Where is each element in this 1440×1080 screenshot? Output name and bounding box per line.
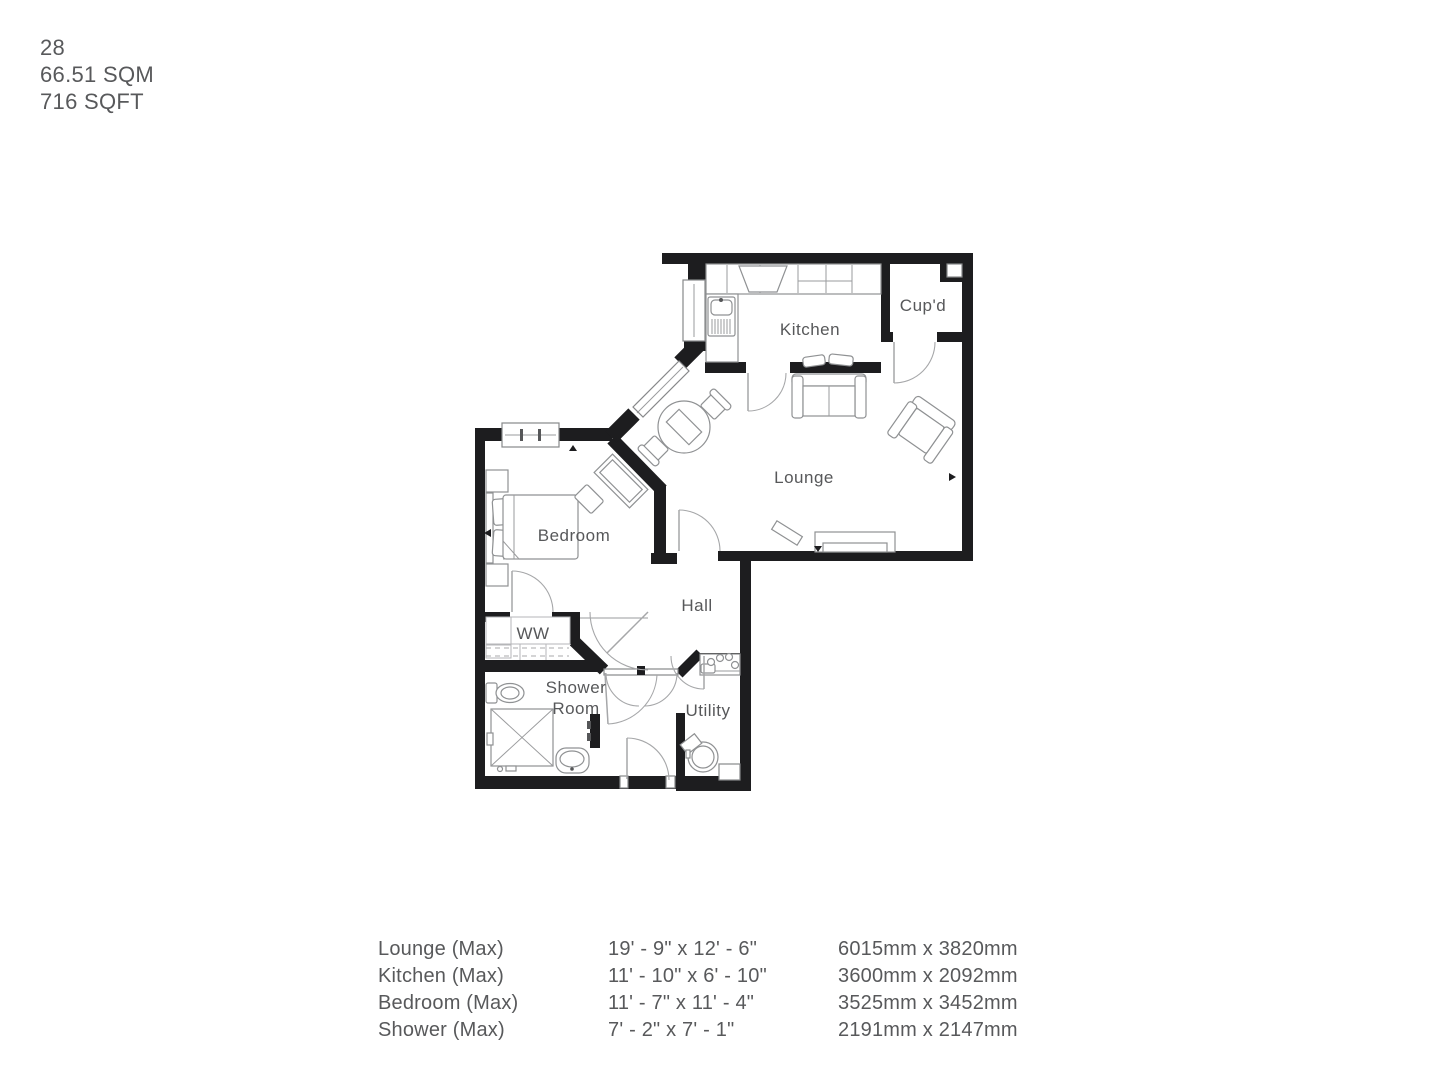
dimensions-table: Lounge (Max) 19' - 9" x 12' - 6" 6015mm … <box>378 938 1088 1046</box>
wardrobe-door <box>512 571 553 612</box>
entry-jamb-right <box>666 776 675 788</box>
room-label-bedroom: Bedroom <box>538 526 610 545</box>
lobby-doors <box>606 673 677 706</box>
floor-plan: Kitchen Cup'd Lounge Bedroom Hall WW Sho… <box>0 0 1440 1080</box>
kitchen-door <box>748 373 786 411</box>
room-label-cupboard: Cup'd <box>900 296 946 315</box>
room-label-shower: Shower <box>546 678 607 697</box>
toilet <box>486 683 524 703</box>
cupboard-door <box>894 342 935 383</box>
utility-notch <box>719 764 740 780</box>
lounge-furniture <box>637 354 959 552</box>
kitchen-units <box>706 264 881 362</box>
bedroom-furniture <box>486 454 648 586</box>
dim-imperial: 19' - 9" x 12' - 6" <box>608 938 838 965</box>
stool <box>574 484 604 514</box>
dim-metric: 3525mm x 3452mm <box>838 992 1088 1019</box>
room-label-lounge: Lounge <box>774 468 834 487</box>
tv-unit <box>815 532 895 552</box>
nightstand <box>486 564 508 586</box>
room-label-shower-room: Room <box>552 699 599 718</box>
floorplan-page: 28 66.51 SQM 716 SQFT <box>0 0 1440 1080</box>
dim-imperial: 7' - 2" x 7' - 1" <box>608 1019 838 1046</box>
room-label-utility: Utility <box>685 701 730 720</box>
utility-counter <box>700 654 740 676</box>
dim-imperial: 11' - 10" x 6' - 10" <box>608 965 838 992</box>
dim-imperial: 11' - 7" x 11' - 4" <box>608 992 838 1019</box>
room-label-kitchen: Kitchen <box>780 320 840 339</box>
dim-room: Lounge (Max) <box>378 938 608 965</box>
lounge-hall-door <box>679 510 720 551</box>
dim-metric: 6015mm x 3820mm <box>838 938 1088 965</box>
dim-metric: 3600mm x 2092mm <box>838 965 1088 992</box>
shower-room-door <box>605 673 657 724</box>
dim-room: Bedroom (Max) <box>378 992 608 1019</box>
kitchen-sink <box>708 297 735 336</box>
cupboard-notch <box>947 264 962 277</box>
washing-machine <box>680 734 718 772</box>
nightstand <box>486 470 508 492</box>
dim-room: Shower (Max) <box>378 1019 608 1046</box>
armchair <box>887 393 959 464</box>
entrance-door <box>627 738 669 780</box>
floor-mat <box>772 521 803 545</box>
shower-enclosure <box>487 709 553 772</box>
dim-room: Kitchen (Max) <box>378 965 608 992</box>
basin <box>556 748 589 773</box>
dim-metric: 2191mm x 2147mm <box>838 1019 1088 1046</box>
room-label-ww: WW <box>516 624 549 643</box>
room-label-hall: Hall <box>681 596 712 615</box>
